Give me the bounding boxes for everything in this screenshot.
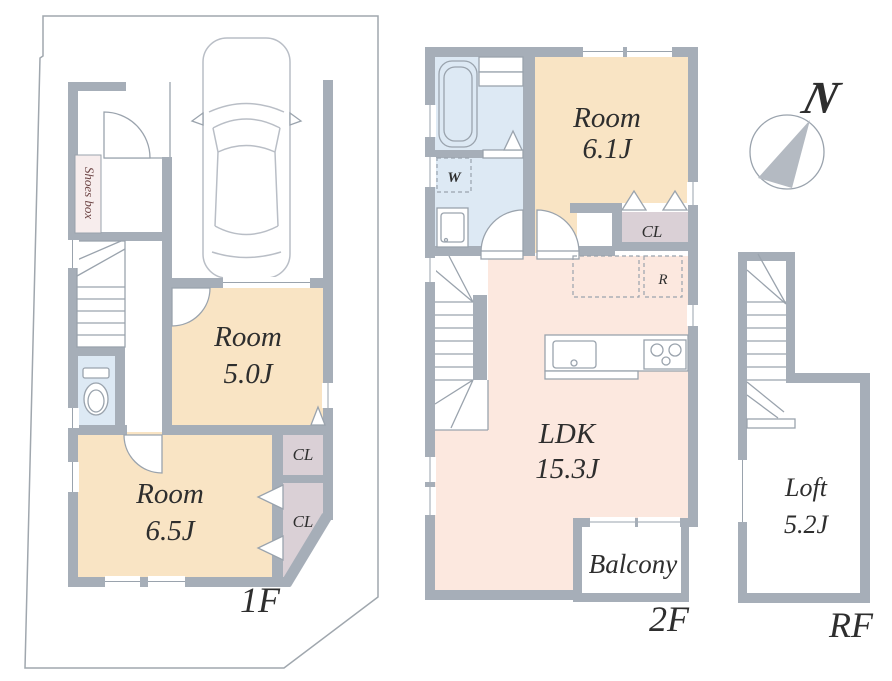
- balcony-label: Balcony: [589, 549, 677, 579]
- room-6-1j-name: Room: [572, 102, 641, 134]
- room-6-1j-size: 6.1J: [582, 133, 632, 165]
- floor-rf-label: RF: [828, 605, 874, 645]
- ldk-size: 15.3J: [535, 453, 600, 485]
- loft-size: 5.2J: [784, 510, 830, 539]
- floorplan-page: Shoes box Room 5.0J Room 6.5J CL CL 1F: [0, 0, 892, 681]
- floorplan-drawing: Shoes box Room 5.0J Room 6.5J CL CL 1F: [0, 0, 892, 681]
- windows-rf: [737, 460, 748, 522]
- room-5-0j-name: Room: [213, 321, 282, 353]
- compass-needle: [758, 120, 810, 188]
- room-5-0j-size: 5.0J: [223, 358, 273, 390]
- room-6-5j-name: Room: [135, 478, 204, 510]
- floorplan-rf: Loft 5.2J RF: [737, 252, 874, 645]
- floorplan-2f: W R Room 6.1J CL LDK 15.3J Balcony 2F: [424, 46, 699, 639]
- north-arrow: N: [750, 73, 847, 189]
- ldk-name: LDK: [538, 418, 597, 450]
- loft-name: Loft: [784, 473, 828, 502]
- closet-a-label: CL: [293, 445, 314, 464]
- floorplan-1f: Shoes box Room 5.0J Room 6.5J CL CL 1F: [66, 38, 334, 620]
- car-icon: [192, 38, 301, 278]
- closet-2f-label: CL: [642, 222, 663, 241]
- toilet-icon: [83, 368, 109, 415]
- floor-1f-label: 1F: [240, 580, 281, 620]
- north-label: N: [796, 73, 847, 124]
- entrance-door-swing: [104, 112, 150, 158]
- shoes-box-label: Shoes box: [82, 167, 97, 220]
- room-6-5j-size: 6.5J: [145, 515, 195, 547]
- sink-cabinet-icon: [437, 208, 468, 247]
- closet-b-label: CL: [293, 512, 314, 531]
- washer-label: W: [447, 170, 462, 186]
- floor-2f-label: 2F: [649, 599, 690, 639]
- fridge-label: R: [657, 272, 667, 288]
- stairs-1f: [77, 241, 125, 347]
